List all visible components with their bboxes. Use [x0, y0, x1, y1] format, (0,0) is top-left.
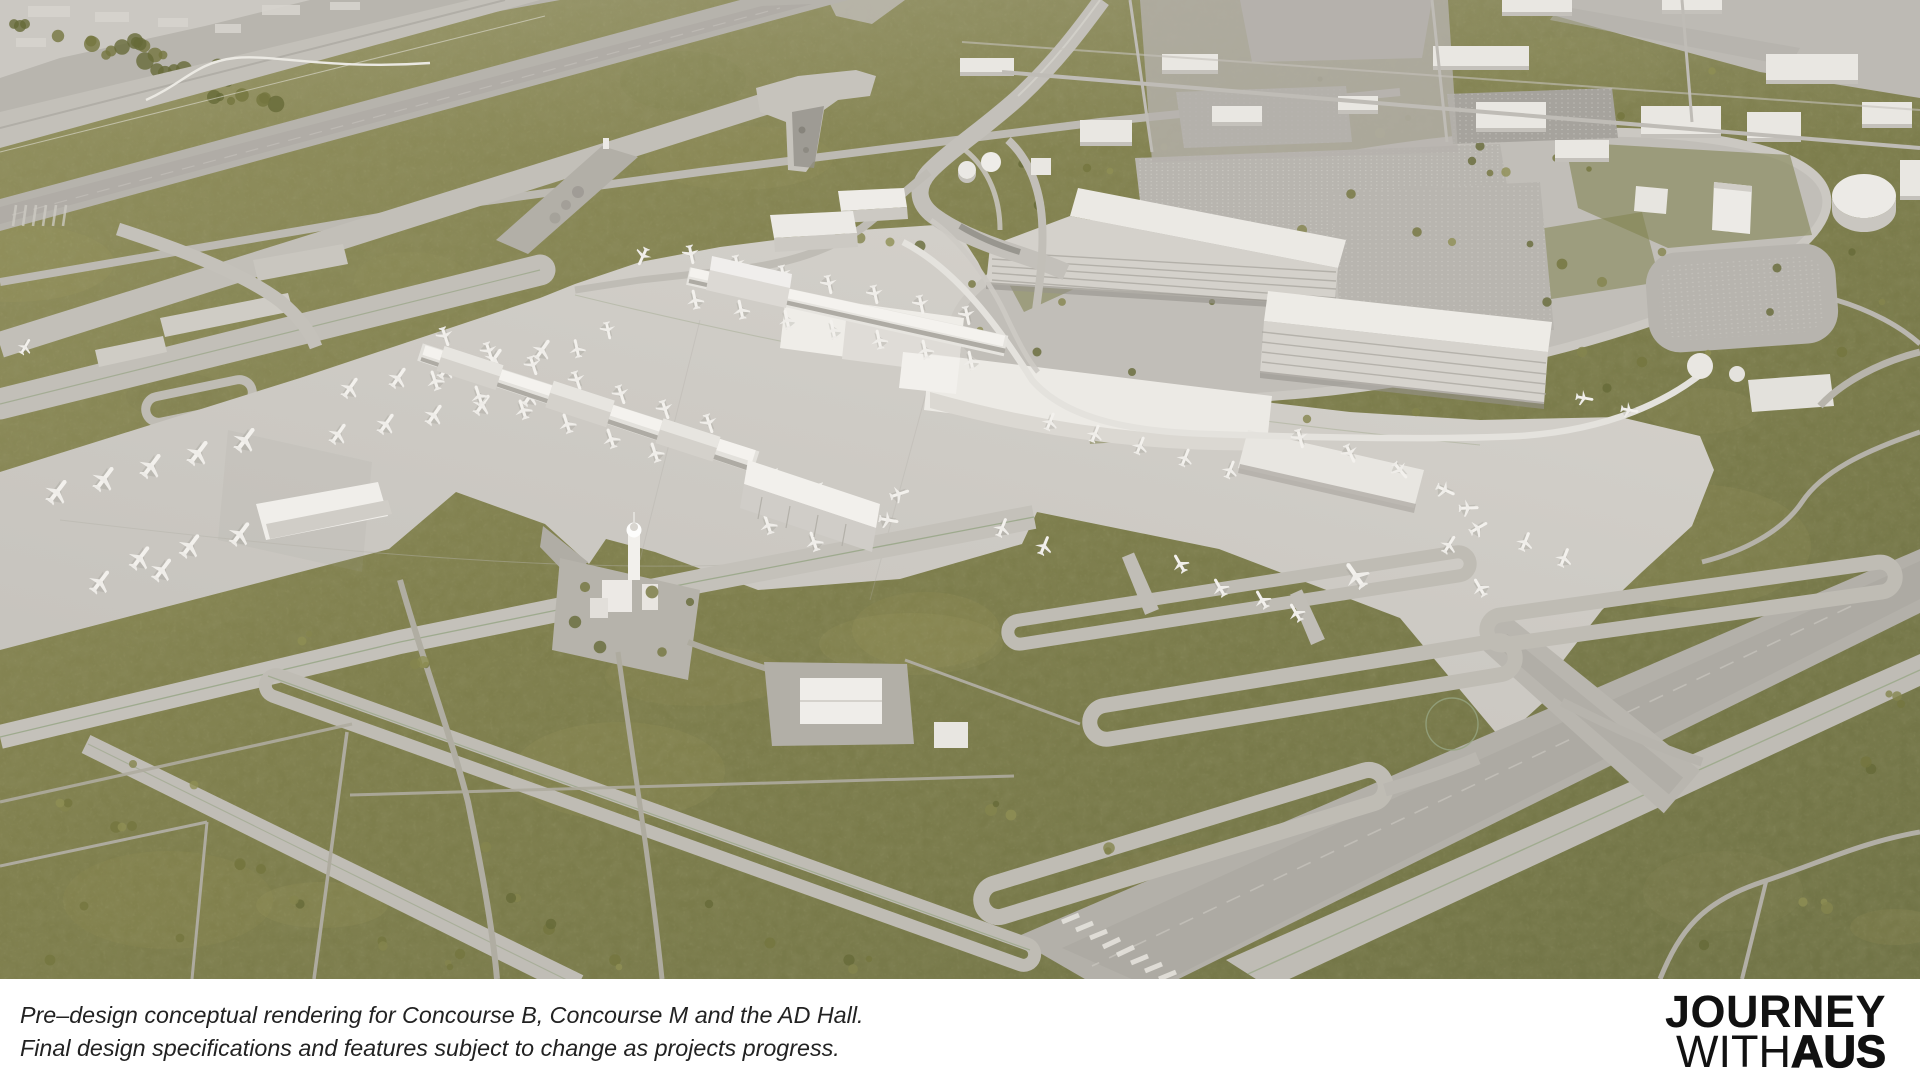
svg-text:Final design specifications an: Final design specifications and features…: [20, 1035, 840, 1061]
svg-text:Pre–design conceptual renderin: Pre–design conceptual rendering for Conc…: [20, 1002, 863, 1028]
svg-text:WITHAUS: WITHAUS: [1676, 1026, 1886, 1077]
